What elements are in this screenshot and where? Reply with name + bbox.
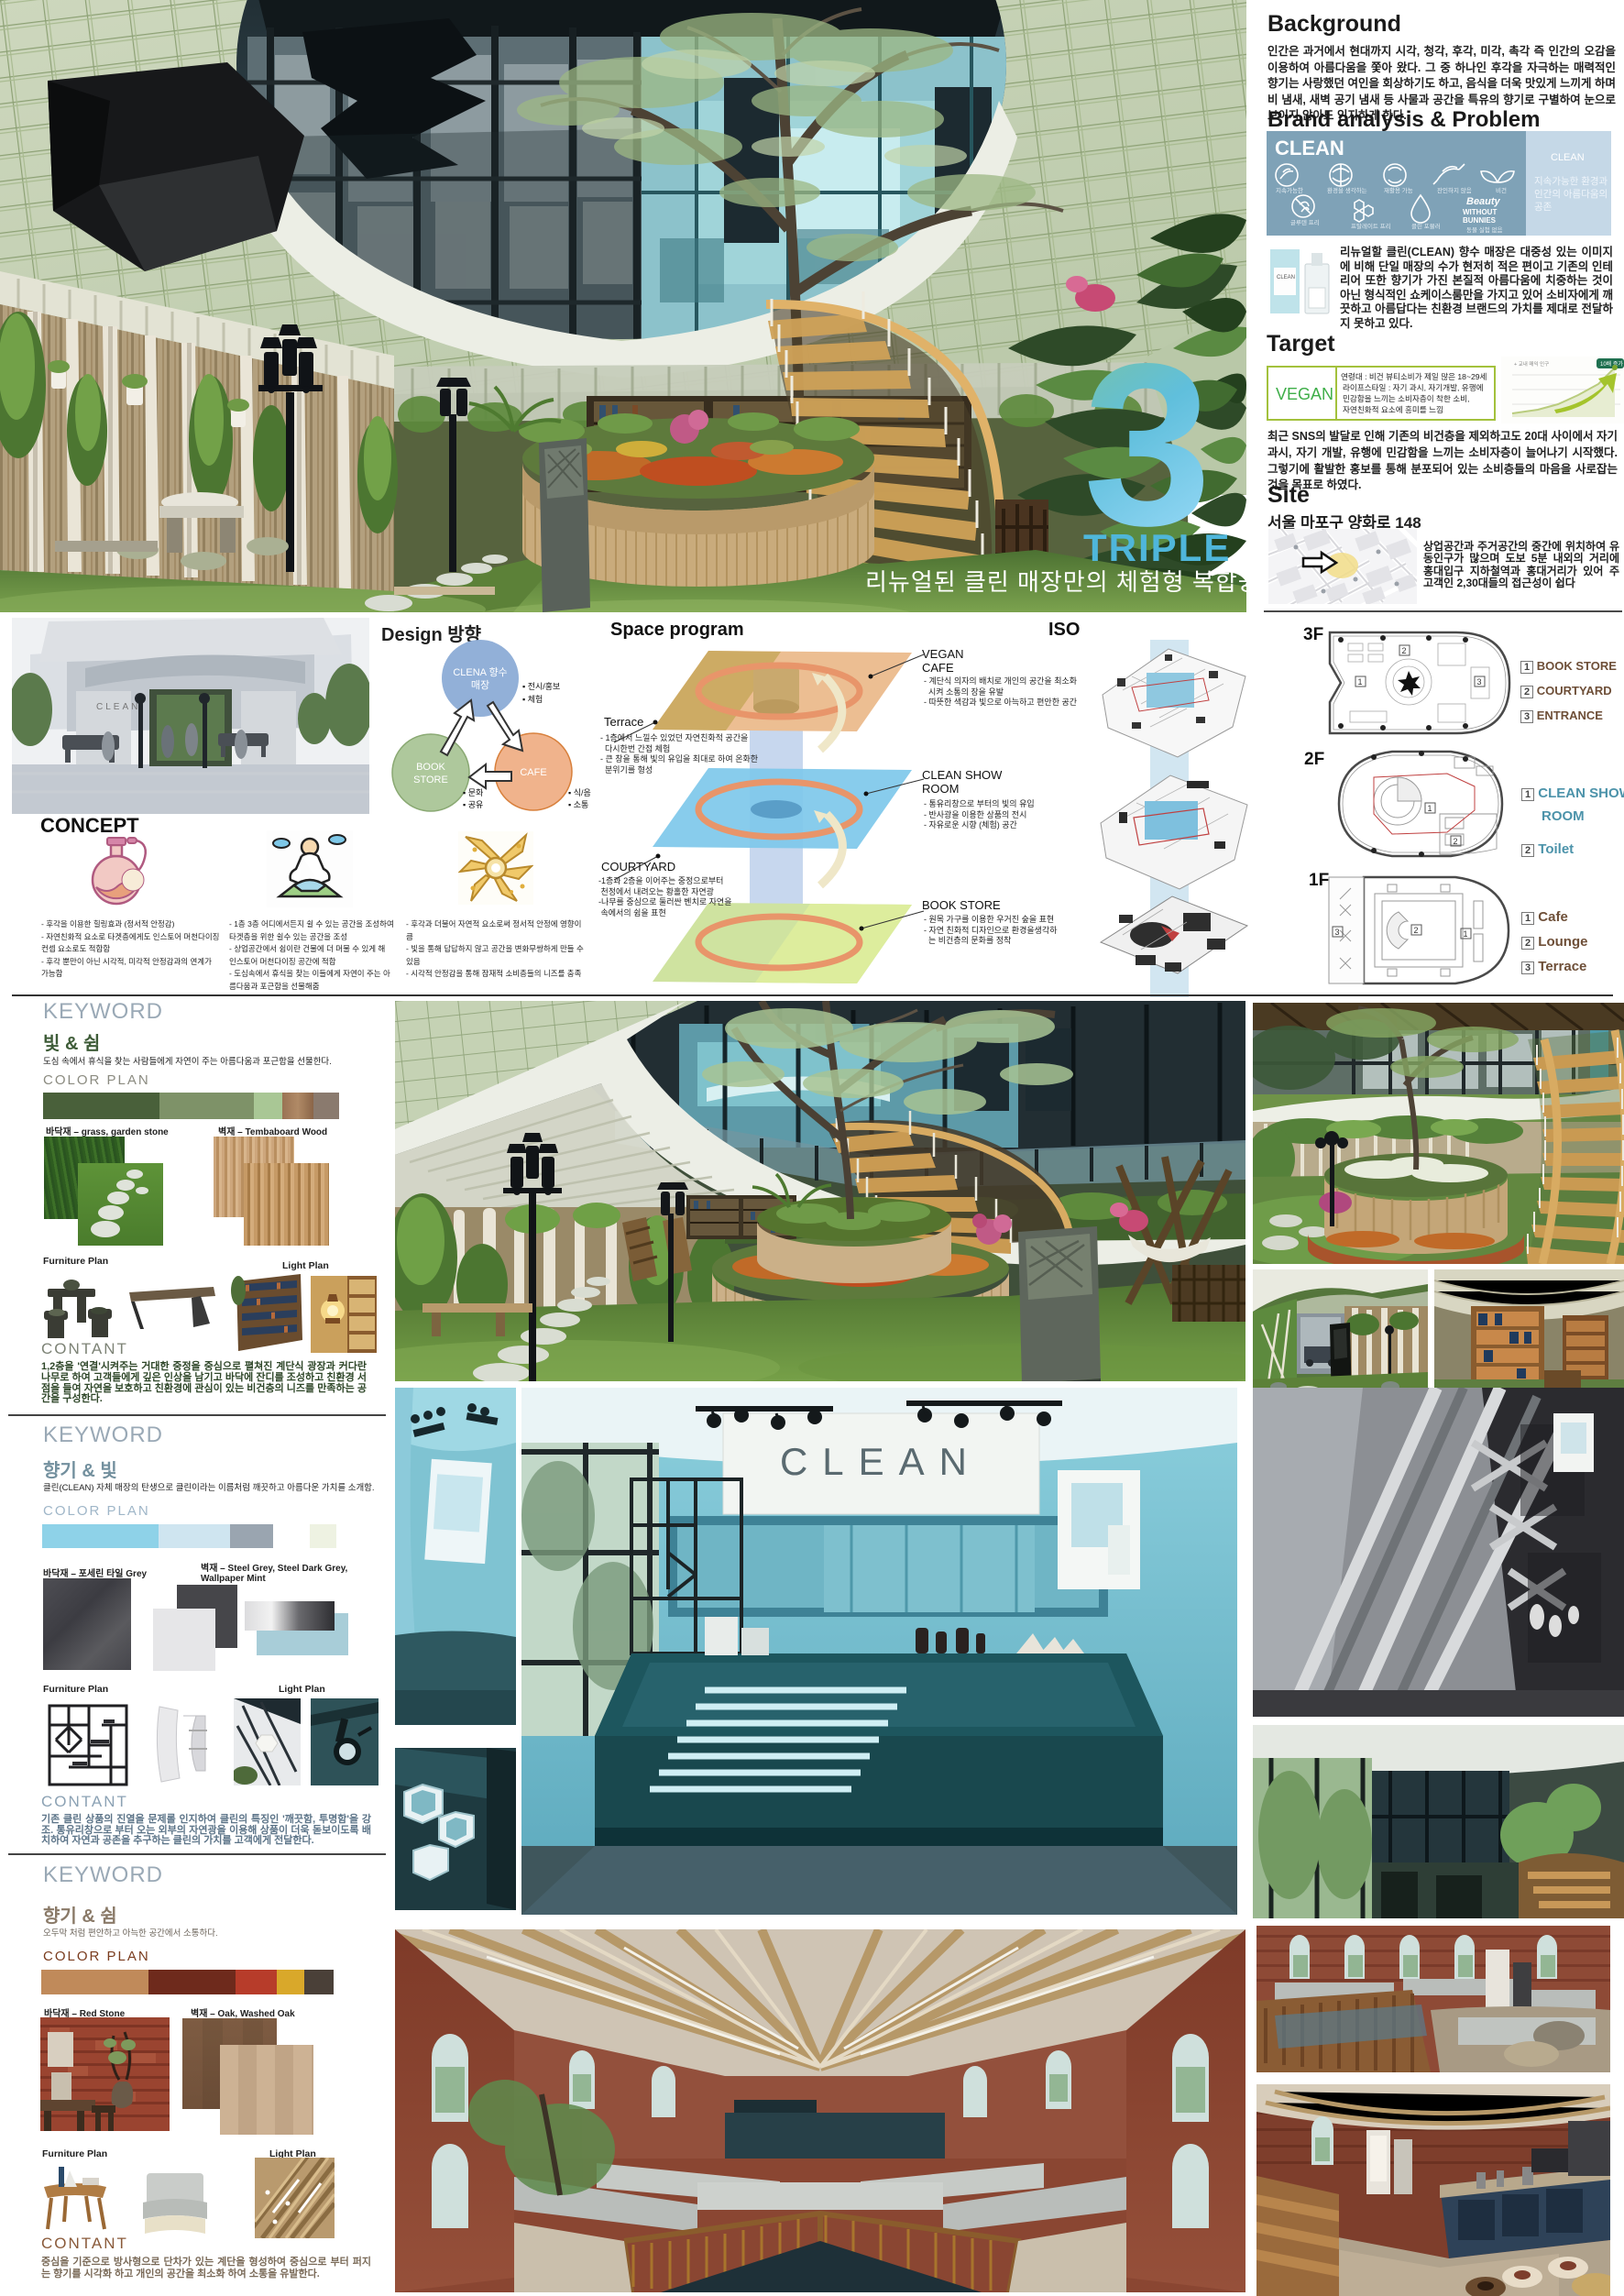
- svg-text:1: 1: [1358, 677, 1363, 687]
- svg-text:클린 포뮬러: 클린 포뮬러: [1411, 222, 1441, 230]
- svg-text:동물 실험 없음: 동물 실험 없음: [1466, 225, 1503, 234]
- svg-text:CLEAN: CLEAN: [1277, 275, 1295, 280]
- svg-text:공존: 공존: [1534, 202, 1553, 213]
- svg-text:1: 1: [1428, 804, 1432, 813]
- svg-text:▪ 체험: ▪ 체험: [522, 695, 543, 704]
- svg-text:CLEAN: CLEAN: [780, 1440, 982, 1483]
- svg-text:CLENA 향수: CLENA 향수: [453, 666, 507, 678]
- svg-text:연령대 : 비건 뷰티소비가 제일 많은 18~29세: 연령대 : 비건 뷰티소비가 제일 많은 18~29세: [1341, 371, 1487, 381]
- svg-text:3: 3: [1477, 677, 1482, 687]
- svg-text:TRIPLE: TRIPLE: [1083, 526, 1231, 569]
- svg-text:BOOK: BOOK: [416, 762, 445, 773]
- svg-text:인간의 아름다움의: 인간의 아름다움의: [1534, 189, 1608, 200]
- svg-text:STORE: STORE: [413, 774, 448, 785]
- svg-text:민감함을 느끼는 소비자층이 착한 소비,: 민감함을 느끼는 소비자층이 착한 소비,: [1343, 393, 1469, 403]
- svg-text:WITHOUT: WITHOUT: [1463, 208, 1497, 216]
- svg-text:2: 2: [1414, 926, 1419, 935]
- svg-text:CLEAN: CLEAN: [1551, 152, 1585, 163]
- svg-text:+ 교내 매익 인구: + 교내 매익 인구: [1514, 360, 1549, 368]
- svg-text:2: 2: [1402, 646, 1407, 655]
- svg-text:환경을 생각하는: 환경을 생각하는: [1327, 186, 1367, 194]
- svg-text:리뉴얼된 클린 매장만의 체험형 복합공간: 리뉴얼된 클린 매장만의 체험형 복합공간: [865, 568, 1246, 596]
- svg-text:글루텐 프리: 글루텐 프리: [1290, 218, 1320, 226]
- svg-text:Beauty: Beauty: [1466, 196, 1501, 207]
- svg-text:CAFE: CAFE: [520, 767, 546, 778]
- svg-text:비건: 비건: [1496, 186, 1507, 194]
- svg-text:지속가능한 환경과: 지속가능한 환경과: [1534, 175, 1608, 187]
- svg-text:자연친화적 요소에 흥미를 느낌: 자연친화적 요소에 흥미를 느낌: [1343, 404, 1443, 414]
- svg-text:2: 2: [1454, 837, 1458, 846]
- svg-text:▪ 공유: ▪ 공유: [463, 800, 483, 809]
- svg-text:라이프스타일 : 자기 과시, 자기개발, 유행에: 라이프스타일 : 자기 과시, 자기개발, 유행에: [1343, 382, 1484, 392]
- svg-text:프탈레이트 프리: 프탈레이트 프리: [1351, 222, 1391, 230]
- svg-text:▪ 전시/홍보: ▪ 전시/홍보: [522, 681, 560, 691]
- svg-text:지속가능한: 지속가능한: [1276, 186, 1303, 194]
- svg-text:재활용 가능: 재활용 가능: [1384, 186, 1413, 194]
- svg-text:▪ 소통: ▪ 소통: [568, 800, 588, 809]
- svg-text:BUNNIES: BUNNIES: [1463, 216, 1497, 225]
- svg-text:3: 3: [1335, 928, 1340, 937]
- svg-text:VEGAN: VEGAN: [1276, 385, 1333, 403]
- svg-text:잔인하지 않음: 잔인하지 않음: [1437, 186, 1472, 194]
- svg-text:CLEAN: CLEAN: [96, 702, 140, 712]
- svg-text:1: 1: [1464, 929, 1468, 939]
- svg-text:매장: 매장: [471, 679, 489, 691]
- svg-text:CLEAN: CLEAN: [1275, 137, 1344, 159]
- svg-text:▪ 문화: ▪ 문화: [463, 788, 483, 797]
- svg-text:10배 증가: 10배 증가: [1600, 360, 1623, 368]
